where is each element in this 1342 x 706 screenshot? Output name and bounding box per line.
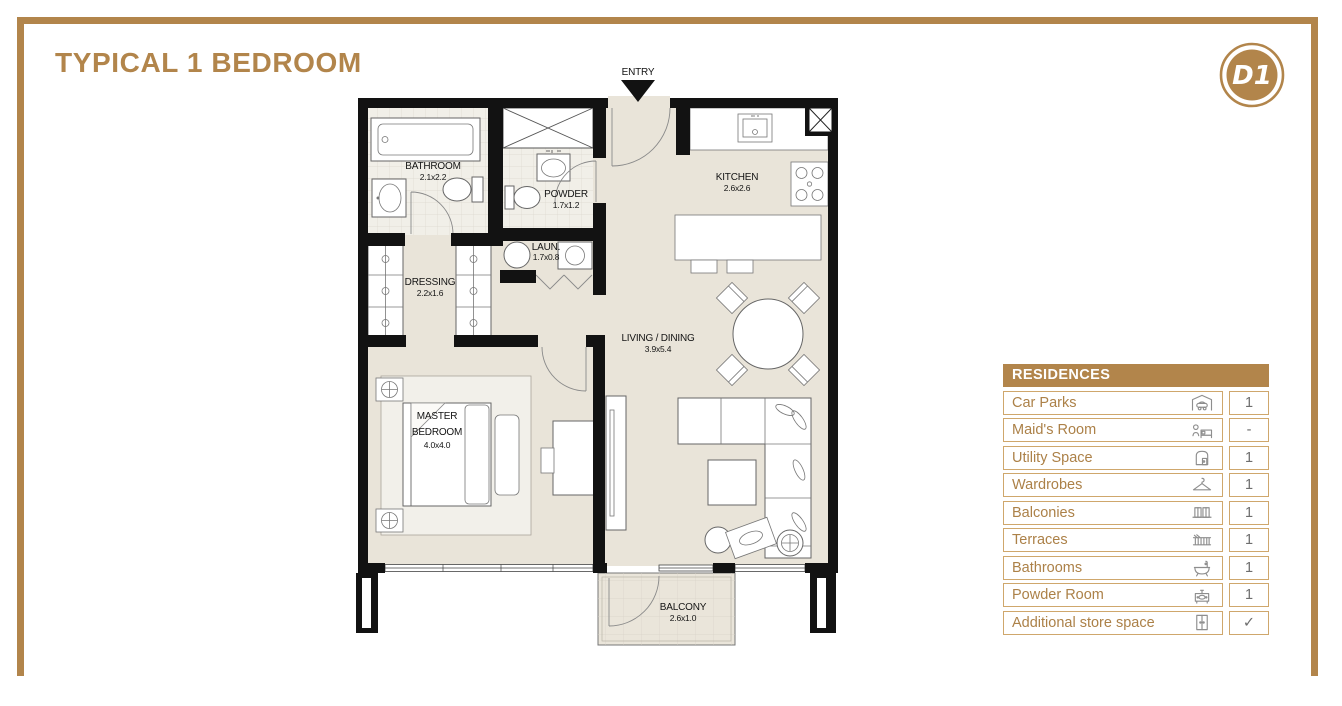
table-row: Utility Space 1	[1003, 446, 1269, 470]
row-label-text: Bathrooms	[1012, 560, 1082, 576]
row-value: ✓	[1229, 611, 1269, 635]
balcony-dims: 2.6x1.0	[670, 613, 697, 623]
row-label-additional-store-space: Additional store space	[1003, 611, 1223, 635]
row-value: 1	[1229, 583, 1269, 607]
row-label-maids-room: Maid's Room	[1003, 418, 1223, 442]
kitchen-dims: 2.6x2.6	[724, 183, 751, 193]
vanity-icon	[1190, 586, 1214, 605]
table-row: Balconies 1	[1003, 501, 1269, 525]
table-row: Car Parks 1	[1003, 391, 1269, 415]
row-label-text: Wardrobes	[1012, 477, 1082, 493]
hanger-icon	[1190, 476, 1214, 495]
kitchen-label: KITCHEN	[716, 172, 759, 183]
row-label-utility-space: Utility Space	[1003, 446, 1223, 470]
row-label-text: Balconies	[1012, 505, 1075, 521]
table-row: Maid's Room -	[1003, 418, 1269, 442]
living-dining-label: LIVING / DINING	[621, 333, 695, 344]
table-row: Additional store space ✓	[1003, 611, 1269, 635]
stool	[727, 260, 753, 273]
row-label-car-parks: Car Parks	[1003, 391, 1223, 415]
row-value: -	[1229, 418, 1269, 442]
powder-dims: 1.7x1.2	[553, 200, 580, 210]
table-row: Bathrooms 1	[1003, 556, 1269, 580]
row-value: 1	[1229, 391, 1269, 415]
terrace-icon	[1190, 531, 1214, 550]
balcony-label: BALCONY	[660, 602, 707, 613]
dressing-label: DRESSING	[405, 277, 456, 288]
master-bedroom-dims: 4.0x4.0	[424, 440, 451, 450]
residences-table-rows: Car Parks 1 Maid's Room - Utility Space	[1003, 391, 1269, 635]
wardrobe-left	[368, 243, 403, 338]
powder-toilet	[514, 187, 540, 209]
dressing-dims: 2.2x1.6	[417, 288, 444, 298]
powder-toilet-tank	[505, 186, 514, 209]
duvet-roll	[465, 405, 489, 504]
stove	[791, 162, 828, 206]
residences-table: RESIDENCES Car Parks 1 Maid's Room - Uti	[1003, 364, 1269, 635]
logo-monogram: D1	[1232, 61, 1272, 91]
kitchen-island	[675, 215, 821, 260]
row-value: 1	[1229, 446, 1269, 470]
stool	[691, 260, 717, 273]
brand-logo: D1	[1218, 41, 1286, 109]
table-row: Powder Room 1	[1003, 583, 1269, 607]
laundry-dims: 1.7x0.8	[533, 252, 560, 262]
row-value: 1	[1229, 528, 1269, 552]
ottoman	[705, 527, 731, 553]
master-bedroom-label-line1: MASTER	[417, 411, 457, 422]
row-label-bathrooms: Bathrooms	[1003, 556, 1223, 580]
bedroom-tv	[541, 448, 554, 473]
bathtub	[371, 118, 480, 161]
table-row: Terraces 1	[1003, 528, 1269, 552]
wardrobe-right	[456, 243, 491, 338]
row-label-powder-room: Powder Room	[1003, 583, 1223, 607]
row-value: 1	[1229, 556, 1269, 580]
row-label-text: Additional store space	[1012, 615, 1155, 631]
store-closet	[503, 108, 593, 148]
nightstand	[376, 378, 403, 401]
toilet-tank	[472, 177, 483, 202]
maid-room-icon	[1190, 421, 1214, 440]
row-label-text: Car Parks	[1012, 395, 1076, 411]
row-value: 1	[1229, 501, 1269, 525]
page-title: TYPICAL 1 BEDROOM	[55, 47, 362, 79]
residences-table-header: RESIDENCES	[1003, 364, 1269, 387]
row-value: 1	[1229, 473, 1269, 497]
coffee-table	[708, 460, 756, 505]
floor-plan: ENTRY BATHROOM 2.1x2.2 POWDER 1.7x1.2 LA…	[353, 58, 845, 658]
brochure-page: { "page": { "title": "TYPICAL 1 BEDROOM"…	[0, 0, 1342, 706]
bathroom-label: BATHROOM	[405, 161, 460, 172]
row-label-text: Utility Space	[1012, 450, 1093, 466]
nightstand	[376, 509, 403, 532]
utility-space-icon	[1190, 448, 1214, 467]
living-dining-dims: 3.9x5.4	[645, 344, 672, 354]
powder-label: POWDER	[544, 189, 588, 200]
row-label-balconies: Balconies	[1003, 501, 1223, 525]
toilet	[443, 178, 471, 201]
row-label-terraces: Terraces	[1003, 528, 1223, 552]
bathroom-dims: 2.1x2.2	[420, 172, 447, 182]
tv-console	[606, 396, 626, 530]
laundry-basket	[504, 242, 530, 268]
balcony-icon	[1190, 503, 1214, 522]
store-cabinet-icon	[1190, 613, 1214, 632]
bathtub-icon	[1190, 558, 1214, 577]
row-label-text: Powder Room	[1012, 587, 1104, 603]
master-bedroom-label-line2: BEDROOM	[412, 427, 462, 438]
row-label-text: Terraces	[1012, 532, 1068, 548]
row-label-text: Maid's Room	[1012, 422, 1096, 438]
side-table	[777, 530, 803, 556]
dining-table	[733, 299, 803, 369]
bed-bench	[495, 415, 519, 495]
entry-label: ENTRY	[622, 67, 655, 78]
car-park-icon	[1190, 393, 1214, 412]
table-row: Wardrobes 1	[1003, 473, 1269, 497]
bedroom-tv-unit	[553, 421, 595, 495]
service-shaft	[805, 104, 836, 136]
row-label-wardrobes: Wardrobes	[1003, 473, 1223, 497]
